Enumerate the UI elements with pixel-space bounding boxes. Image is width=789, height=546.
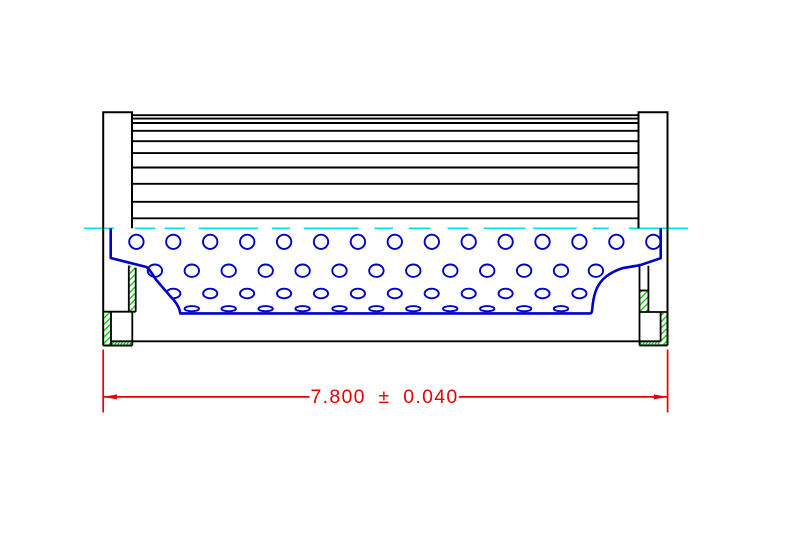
- svg-text:7.800 ± 0.040: 7.800 ± 0.040: [311, 386, 459, 408]
